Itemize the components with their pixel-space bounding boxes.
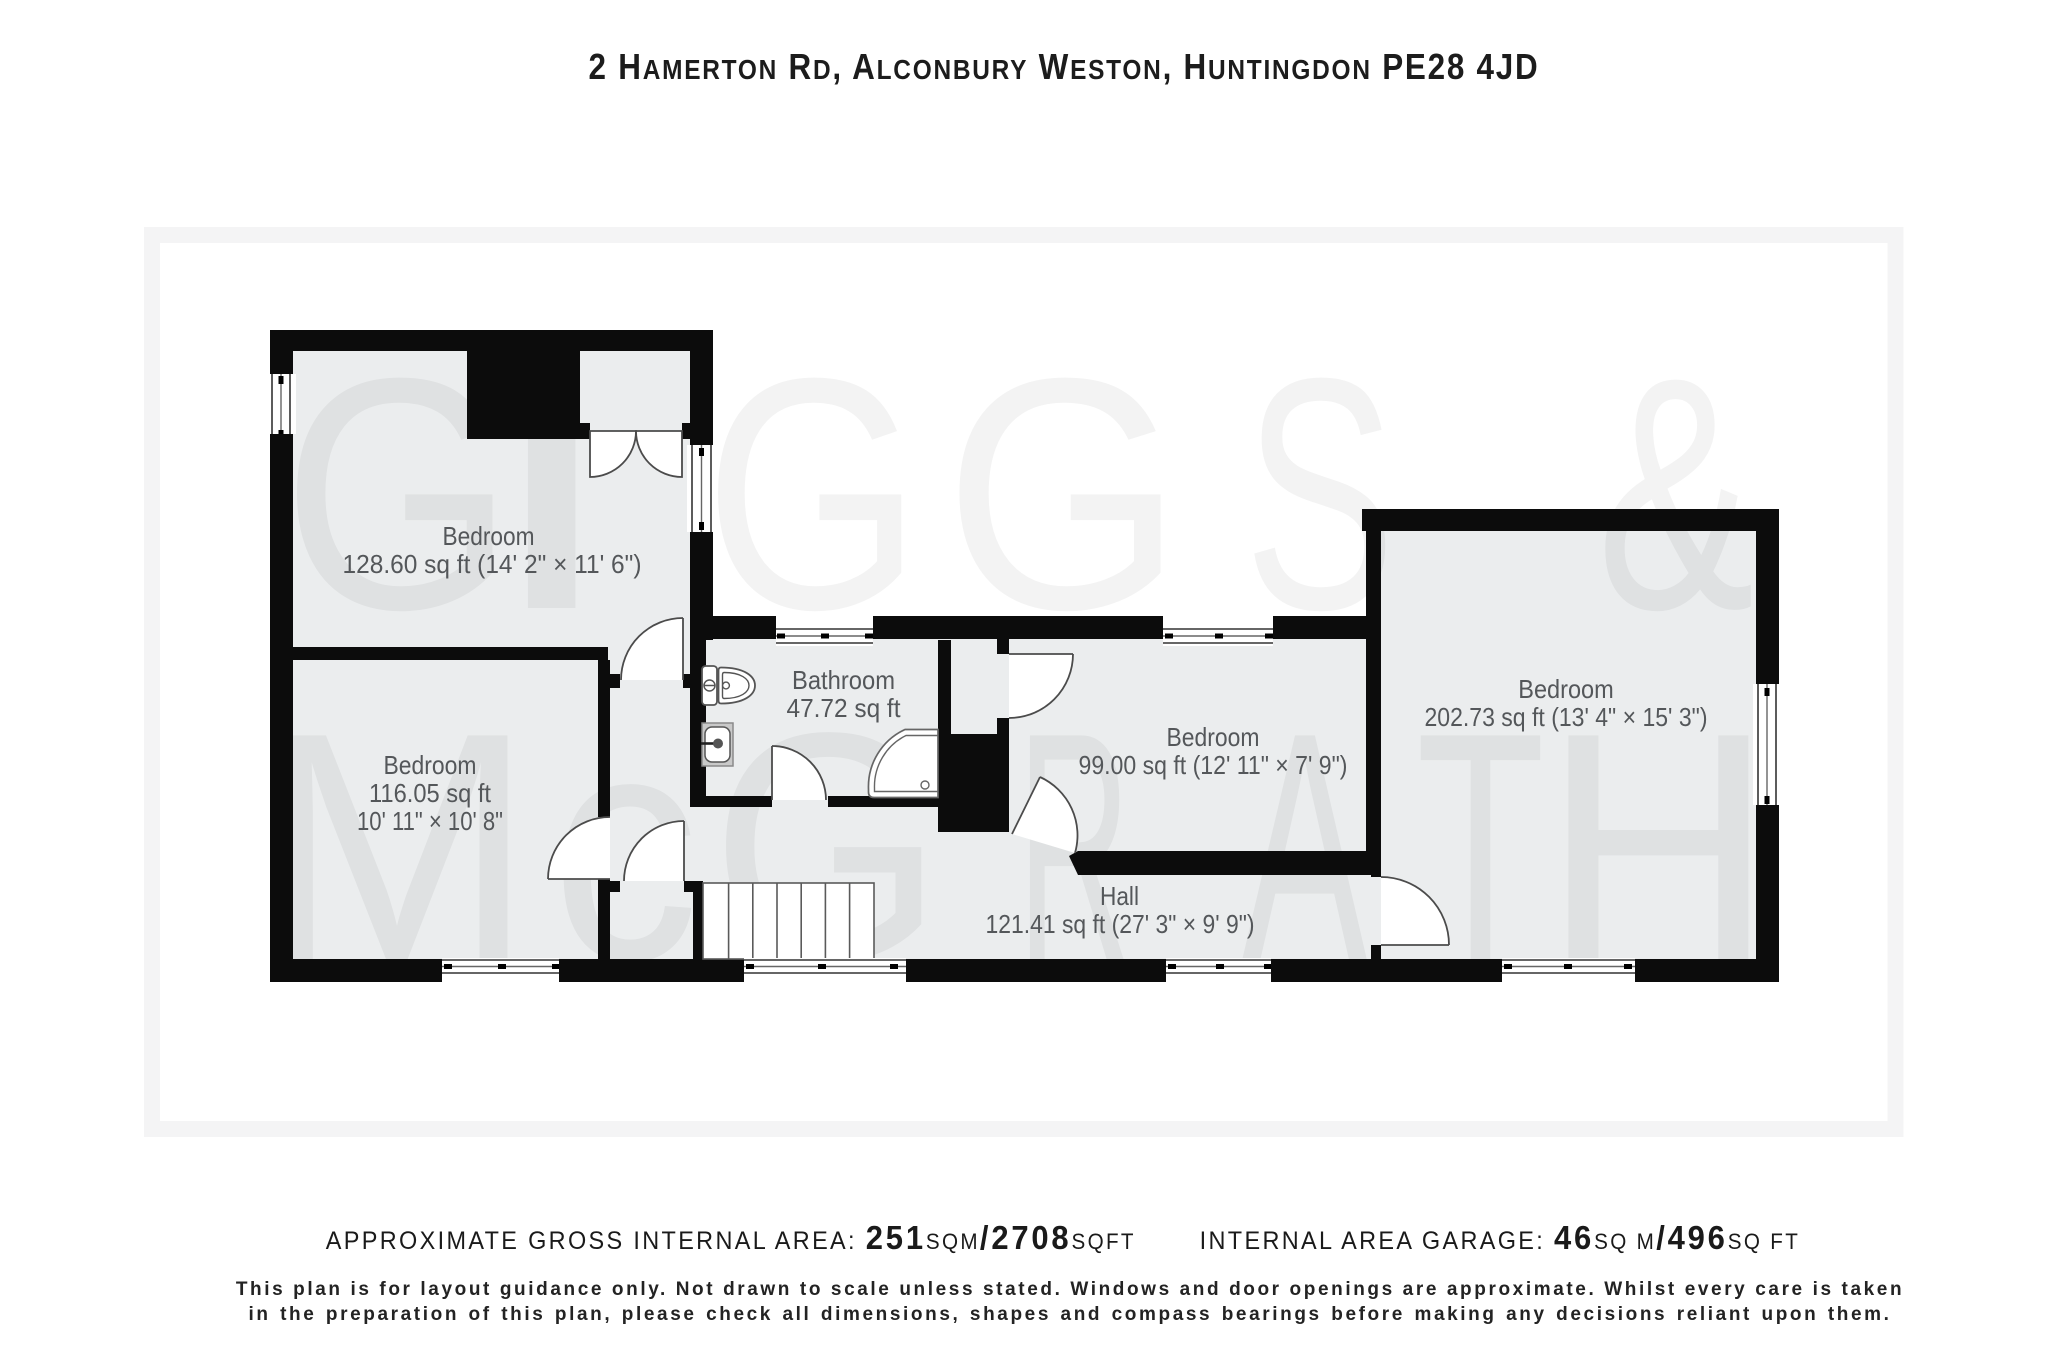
svg-text:202.73 sq ft (13' 4" × 15' 3"): 202.73 sq ft (13' 4" × 15' 3")	[1425, 702, 1708, 732]
svg-text:Bedroom: Bedroom	[384, 750, 477, 780]
svg-text:Bathroom: Bathroom	[792, 665, 895, 695]
svg-text:47.72 sq ft: 47.72 sq ft	[787, 693, 902, 723]
svg-text:&: &	[1597, 309, 1754, 678]
svg-text:128.60 sq ft (14' 2" × 11' 6"): 128.60 sq ft (14' 2" × 11' 6")	[343, 549, 642, 579]
svg-text:116.05 sq ft: 116.05 sq ft	[369, 778, 492, 808]
svg-text:Bedroom: Bedroom	[443, 521, 535, 551]
svg-text:121.41 sq ft (27' 3" × 9' 9"): 121.41 sq ft (27' 3" × 9' 9")	[986, 909, 1255, 939]
svg-text:Hall: Hall	[1100, 881, 1139, 911]
svg-text:99.00 sq ft (12' 11" × 7' 9"): 99.00 sq ft (12' 11" × 7' 9")	[1079, 750, 1348, 780]
svg-text:Bedroom: Bedroom	[1167, 722, 1260, 752]
svg-text:10' 11" × 10' 8": 10' 11" × 10' 8"	[357, 806, 503, 836]
svg-text:Bedroom: Bedroom	[1518, 674, 1614, 704]
